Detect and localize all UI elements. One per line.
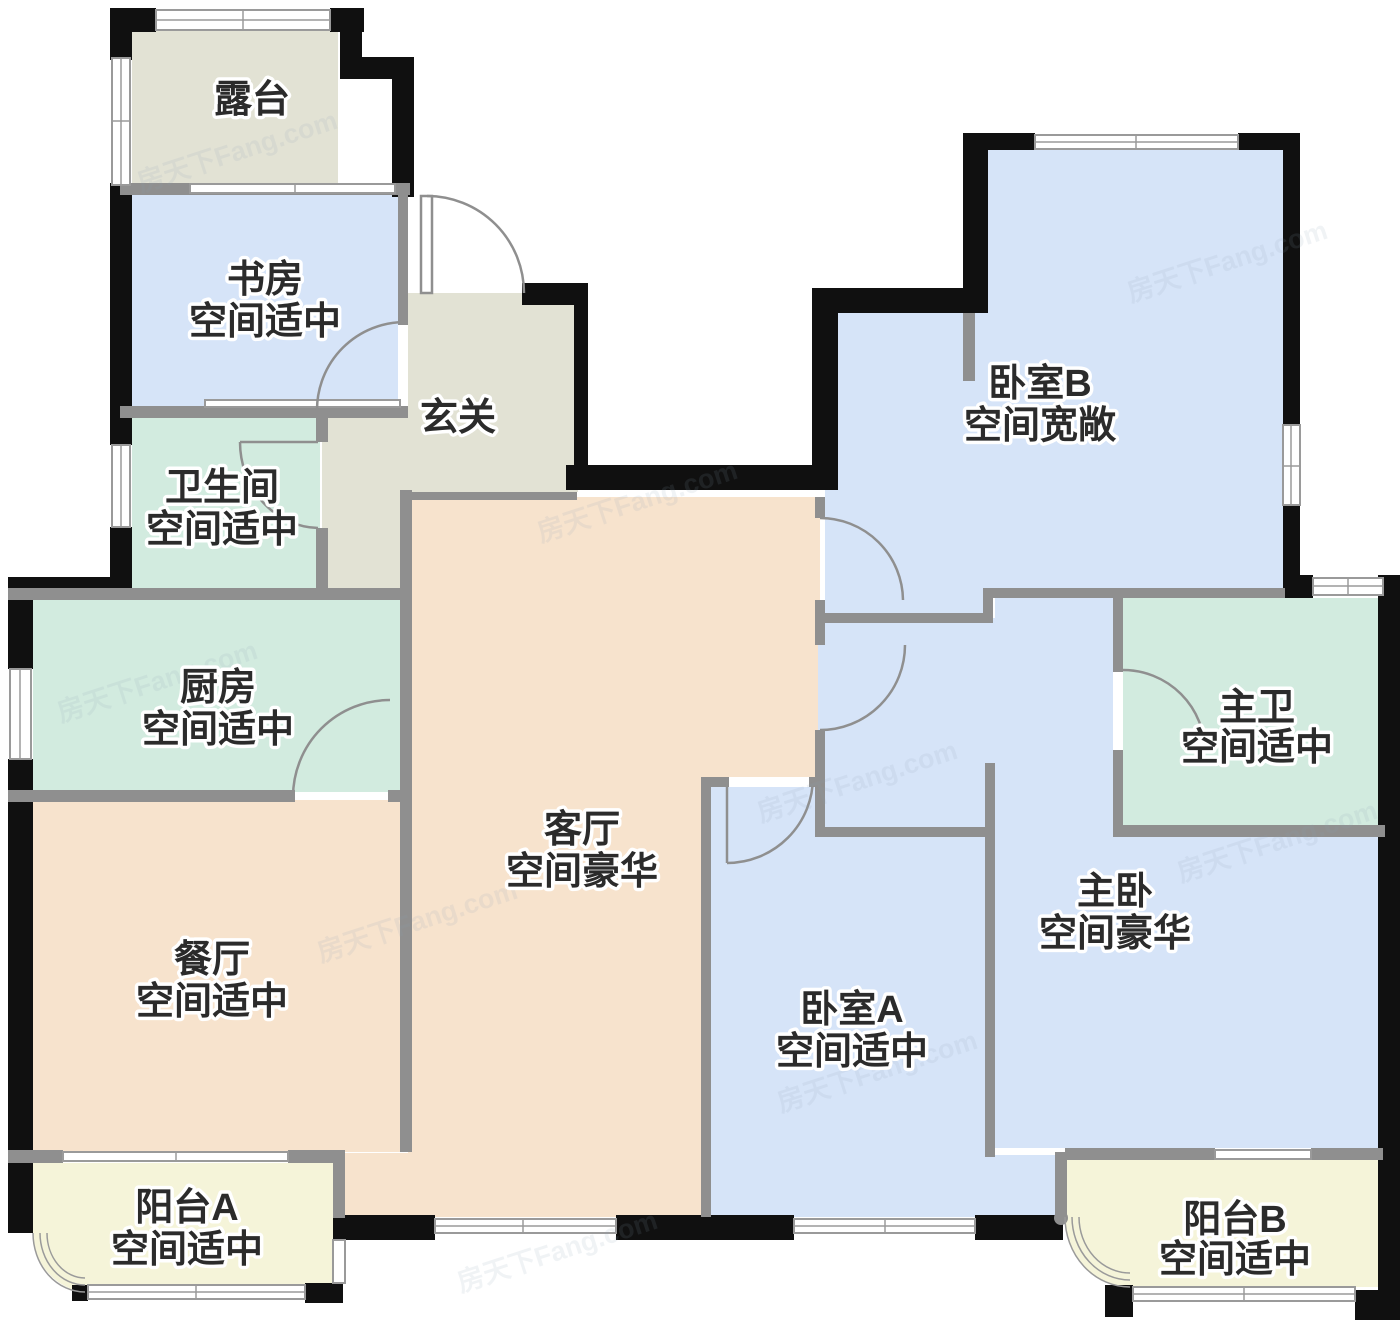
label-balcony-a-note: 空间适中 [111,1229,263,1271]
label-master-bedroom-name: 主卧 [1077,871,1153,913]
wall-segment [405,492,577,500]
label-balcony-b-note: 空间适中 [1159,1239,1311,1281]
window [112,58,130,185]
label-kitchen-note: 空间适中 [142,709,294,751]
label-master-bedroom-note: 空间豪华 [1039,913,1191,955]
entry-door [421,196,524,293]
wall-segment [8,790,295,802]
wall-segment [392,57,414,197]
wall-segment [1283,505,1300,585]
wall-segment [815,613,993,623]
window [1283,425,1300,505]
wall-segment [8,1124,33,1233]
wall-segment [975,1215,1063,1240]
wall-segment [8,588,410,600]
label-living-name: 客厅 [544,808,620,851]
wall-segment [815,497,825,518]
wall-segment [110,183,132,413]
wall-segment [1311,1148,1383,1160]
label-hallway-name: 玄关 [420,397,496,439]
window [190,184,395,193]
label-bathroom-name: 卫生间 [165,467,279,509]
wall-segment [701,777,711,1217]
wall-segment [963,133,1035,150]
wall-segment [1065,1148,1215,1160]
window [794,1219,975,1233]
label-terrace-name: 露台 [214,79,290,121]
label-bathroom-note: 空间适中 [146,509,298,551]
wall-segment [316,418,328,442]
wall-segment [305,1283,343,1303]
wall-segment [1283,141,1300,425]
wall-segment [1113,598,1123,672]
label-balcony-b-name: 阳台B [1183,1199,1286,1241]
room-hallway-corridor [322,408,408,600]
window [1313,578,1383,595]
wall-segment [574,283,588,473]
window [88,1285,305,1299]
wall-segment [8,759,33,1126]
window [156,10,330,30]
label-study-name: 书房 [227,259,303,301]
wall-segment [1105,1285,1133,1317]
window [333,1240,345,1283]
wall-segment [316,528,328,594]
floorplan-page: 房天下Fang.com 房天下Fang.com 房天下Fang.com 房天下F… [0,0,1400,1326]
label-master-bath-name: 主卫 [1219,687,1295,729]
wall-segment [72,1285,88,1301]
window [10,669,31,759]
wall-segment [333,1215,435,1240]
wall-segment [400,490,412,1152]
label-study-note: 空间适中 [189,301,341,343]
wall-segment [985,763,995,1157]
wall-segment [8,1150,63,1163]
wall-segment [812,288,838,490]
wall-segment [983,588,1285,598]
window [1133,1287,1355,1301]
wall-segment [110,30,132,60]
wall-segment [288,1150,345,1163]
window [205,400,400,407]
label-bedroom-b-name: 卧室B [988,362,1091,405]
wall-segment [963,313,975,381]
label-dining-name: 餐厅 [174,939,250,981]
wall-segment [1055,1152,1067,1218]
label-bedroom-a-name: 卧室A [800,988,903,1031]
label-balcony-a-name: 阳台A [135,1187,238,1229]
floorplan-canvas: 房天下Fang.com 房天下Fang.com 房天下Fang.com 房天下F… [0,0,1400,1326]
wall-segment [815,827,995,837]
room-hallway [408,293,578,492]
window [1215,1150,1311,1159]
wall-segment [1355,1290,1400,1320]
wall-segment [1283,575,1313,598]
wall-segment [963,133,988,313]
wall-segment [1113,750,1123,835]
label-living-note: 空间豪华 [506,851,658,893]
wall-segment [812,288,988,313]
window [63,1152,288,1161]
wall-segment [8,598,33,669]
wall-segment [110,8,156,32]
wall-segment [398,192,408,325]
wall-segment [1378,575,1400,1157]
label-dining-note: 空间适中 [136,981,288,1023]
label-master-bath-note: 空间适中 [1181,727,1333,769]
window [112,445,130,527]
window [1035,135,1238,149]
label-bedroom-a-note: 空间适中 [776,1031,928,1073]
label-bedroom-b-note: 空间宽敞 [964,404,1117,447]
label-kitchen-name: 厨房 [180,667,256,709]
